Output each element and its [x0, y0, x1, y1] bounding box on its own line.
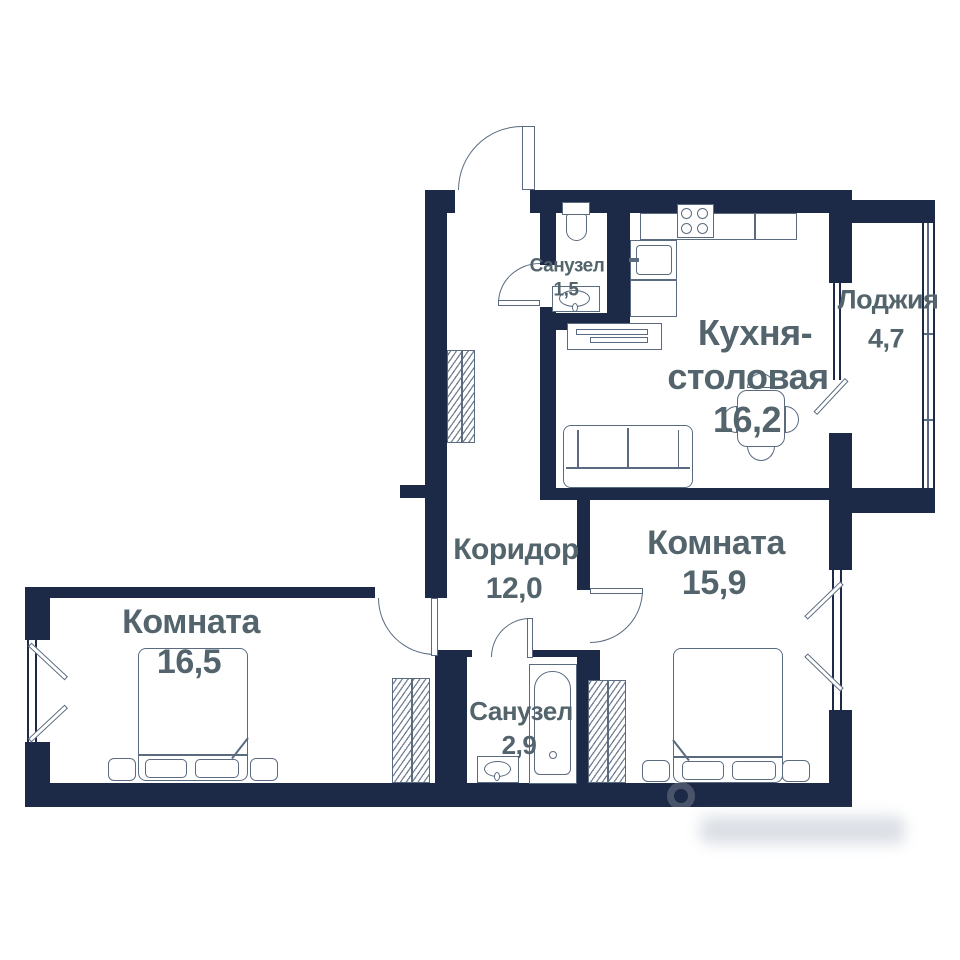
loggia-glazing [922, 223, 935, 488]
wall-bathroom2-right-chunk [577, 650, 600, 680]
kitchen-counter-top-icon [640, 213, 797, 240]
wall-bottom [25, 783, 852, 807]
room-label-bathroom-bottom: Санузел [469, 698, 572, 724]
bathroom-bottom-door-arc [491, 618, 530, 657]
floor-plan: Санузел 1,5 Кухня- столовая 16,2 Лоджия … [0, 0, 960, 960]
room-right-door-arc [590, 590, 643, 643]
wall-bathroom1-right [607, 213, 630, 313]
room-label-loggia: Лоджия [838, 287, 939, 314]
area-label-bathroom-bottom: 2,9 [502, 732, 537, 758]
wall-room-right-side-upper [829, 513, 852, 570]
area-label-room-left: 16,5 [157, 645, 221, 679]
wall-room-right-side-lower [829, 710, 852, 807]
wall-loggia-top [852, 200, 935, 223]
wardrobe-icon [588, 680, 626, 783]
watermark-ring [667, 782, 695, 810]
sofa-icon [563, 425, 693, 488]
wardrobe-icon [392, 678, 430, 783]
toilet-bowl-icon [566, 214, 587, 241]
stove-icon [677, 204, 714, 238]
tv-stand-icon [567, 323, 662, 350]
room-label-kitchen-line2: столовая [667, 359, 828, 395]
watermark-blur [700, 816, 905, 844]
wall-hall-divider [540, 307, 556, 488]
nightstand-icon [782, 760, 810, 782]
wall-kitchen-right-upper [829, 190, 852, 283]
wall-room-left-top [25, 587, 375, 598]
area-label-loggia: 4,7 [868, 326, 904, 353]
room-left-door-arc [378, 598, 435, 655]
chair-icon [785, 406, 799, 433]
area-label-kitchen: 16,2 [713, 402, 781, 438]
chair-icon [747, 446, 775, 461]
bed-icon [673, 648, 783, 783]
washbasin-icon [477, 756, 519, 783]
entrance-door-leaf-icon [522, 126, 535, 190]
room-right-door-leaf-icon [590, 588, 643, 594]
wall-bathroom2-left [435, 650, 467, 783]
area-label-room-right: 15,9 [682, 566, 746, 600]
room-label-corridor: Коридор [453, 535, 579, 565]
room-label-bathroom-top: Санузел [530, 257, 605, 276]
wall-outer-stub [400, 485, 425, 498]
area-label-corridor: 12,0 [486, 574, 542, 604]
nightstand-icon [642, 760, 670, 782]
wall-bathroom2-top-left [467, 650, 472, 657]
nightstand-icon [250, 758, 278, 781]
wardrobe-icon [447, 350, 475, 443]
nightstand-icon [108, 758, 136, 781]
area-label-bathroom-top: 1,5 [554, 281, 579, 300]
room-label-kitchen-line1: Кухня- [698, 315, 812, 351]
room-label-room-right: Комната [647, 526, 785, 560]
window-room-left [27, 640, 37, 742]
kitchen-sink-icon [636, 245, 672, 275]
room-label-room-left: Комната [122, 605, 260, 639]
wall-bathroom2-top-right [530, 650, 577, 657]
wall-room-left-side-upper [25, 587, 50, 640]
wall-left-upper-wing [425, 190, 447, 598]
bathroom-top-door-leaf-icon [498, 300, 540, 306]
entrance-door-arc [458, 126, 522, 190]
wall-loggia-bottom [829, 488, 935, 513]
bathroom-bottom-door-leaf-icon [527, 618, 533, 658]
room-left-door-leaf-icon [431, 598, 438, 656]
